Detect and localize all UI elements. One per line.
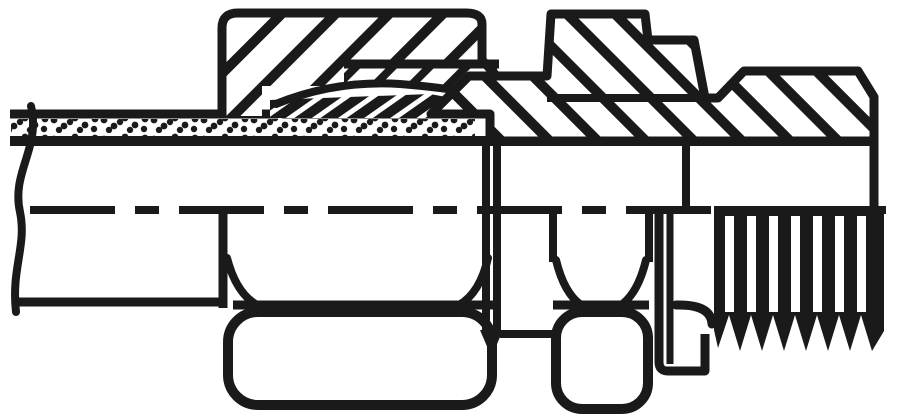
thread-groove [813,216,822,312]
hex-chamfer-curve-left [556,260,581,305]
union-nut-external [223,141,503,405]
thread-runout-curve [676,305,712,324]
tube-wall-stipple [11,119,475,137]
body-outline-hatched [431,14,874,141]
body-hex-flat [556,312,648,409]
body-hex-external [500,210,649,409]
nut-chamfer-curve-left [227,258,257,305]
hex-chamfer-curve-right [621,260,646,305]
sealing-cone-step [659,210,712,371]
thread-groove [791,216,800,312]
thread-groove [769,216,778,312]
thread-groove [725,216,734,312]
thread-groove [747,216,756,312]
thread-groove [857,216,866,312]
union-nut-hex-flat [228,312,492,405]
fitting-diagram [0,0,898,415]
thread-groove [835,216,844,312]
fitting-drawing-canvas [0,0,898,415]
male-thread [714,206,884,351]
cone-step-outline [659,210,705,371]
